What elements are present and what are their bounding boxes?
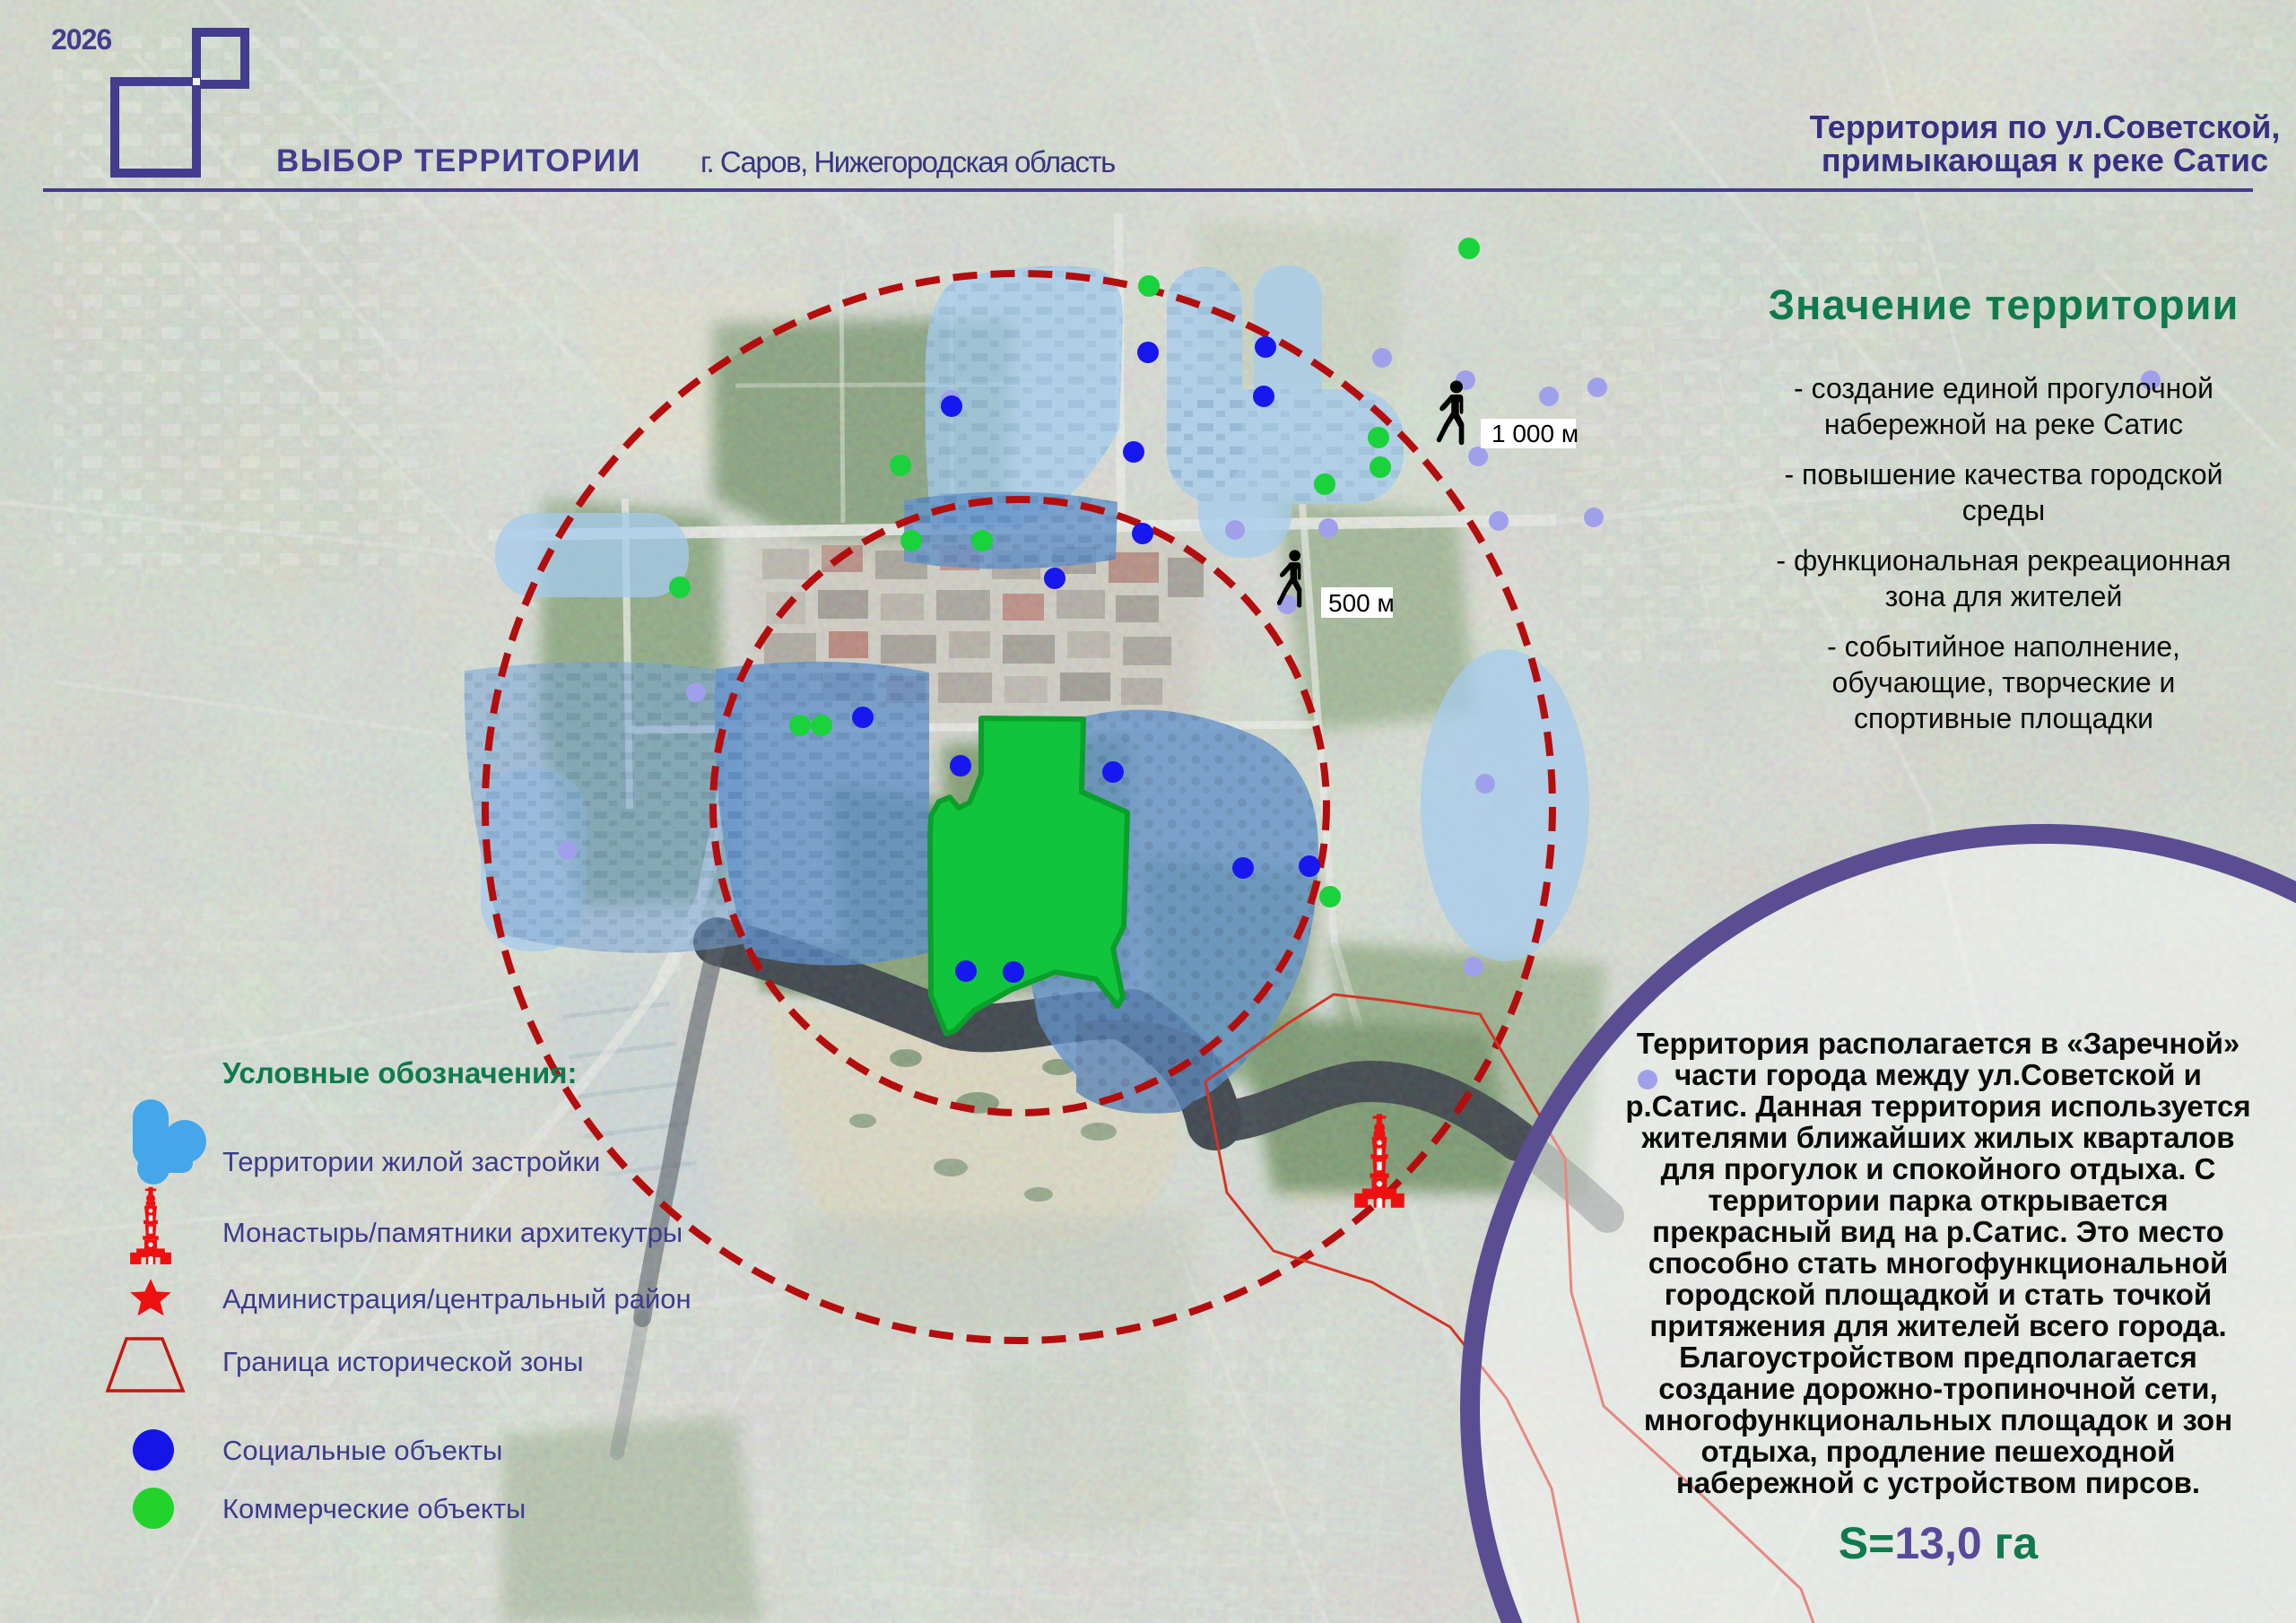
svg-text:1 000 м: 1 000 м: [1492, 420, 1578, 447]
svg-text:500 м: 500 м: [1328, 589, 1395, 617]
